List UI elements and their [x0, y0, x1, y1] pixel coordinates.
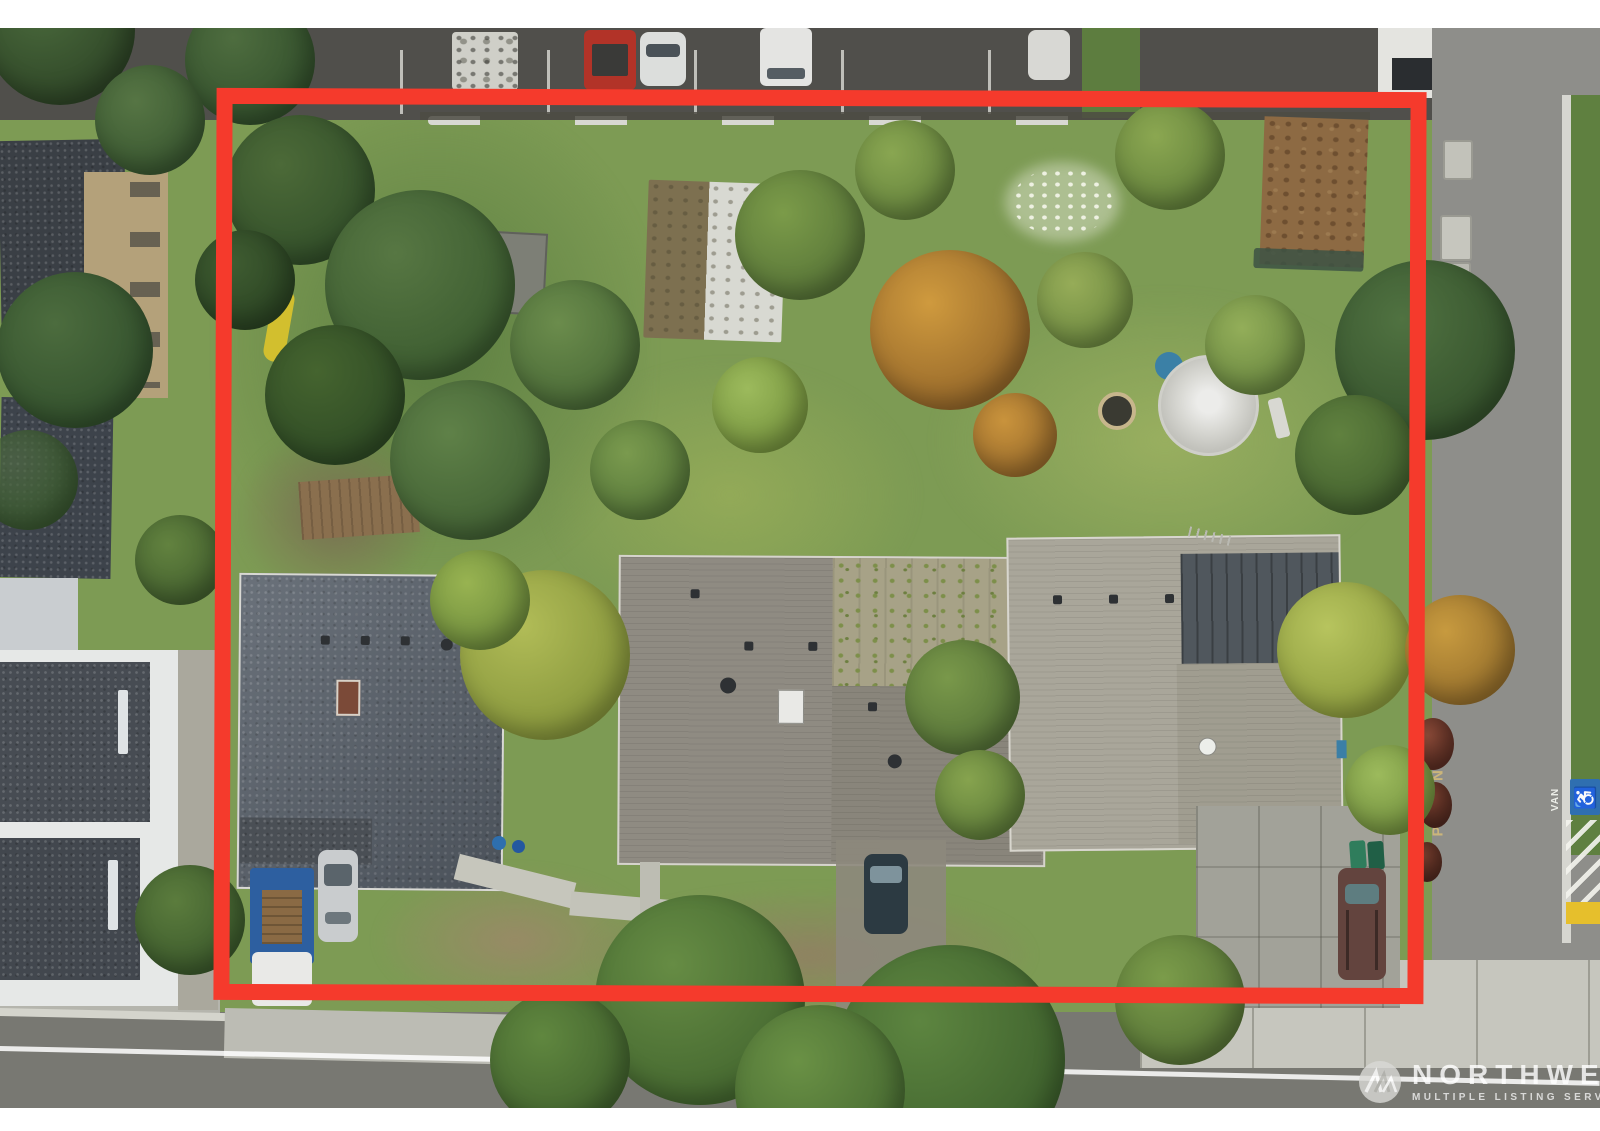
- wheelchair-icon: ♿: [1573, 785, 1598, 810]
- windshield: [767, 68, 805, 79]
- frame-band-top: [0, 0, 1600, 28]
- right-grass-strip: [1571, 95, 1600, 855]
- tree: [95, 65, 205, 175]
- yellow-curb-ramp: [1566, 902, 1600, 924]
- van-stencil: VAN: [1543, 780, 1569, 818]
- van-stencil-text: VAN: [1551, 787, 1562, 810]
- tree: [0, 272, 153, 428]
- skylight: [108, 860, 118, 930]
- watermark-brand: NORTHWEST: [1412, 1061, 1600, 1089]
- utility-pad: [1440, 215, 1472, 261]
- property-boundary: [213, 88, 1426, 1004]
- white-house-roof: [0, 662, 150, 822]
- utility-pad: [1443, 140, 1473, 180]
- windshield: [646, 44, 680, 57]
- red-pickup-truck: [584, 30, 636, 90]
- white-car: [1028, 30, 1070, 80]
- watermark-text: NORTHWEST MULTIPLE LISTING SERVICE: [1412, 1061, 1600, 1103]
- skylight: [118, 690, 128, 754]
- white-house-roof: [0, 838, 140, 980]
- white-van: [760, 28, 812, 86]
- frame-band-bottom: [0, 1108, 1600, 1131]
- neighbor-building-gray: [0, 578, 78, 656]
- hatched-no-park-zone: [1566, 820, 1600, 904]
- truck-bed: [592, 44, 628, 76]
- tree: [135, 515, 225, 605]
- watermark: NORTHWEST MULTIPLE LISTING SERVICE: [1358, 1056, 1600, 1108]
- white-car: [640, 32, 686, 86]
- watermark-tagline: MULTIPLE LISTING SERVICE: [1412, 1093, 1600, 1103]
- mls-logo-icon: [1358, 1060, 1402, 1104]
- aerial-photo: PARKING VAN ♿: [0, 0, 1600, 1131]
- accessible-parking-sign: ♿: [1570, 779, 1600, 815]
- utility-trailer: [452, 32, 518, 90]
